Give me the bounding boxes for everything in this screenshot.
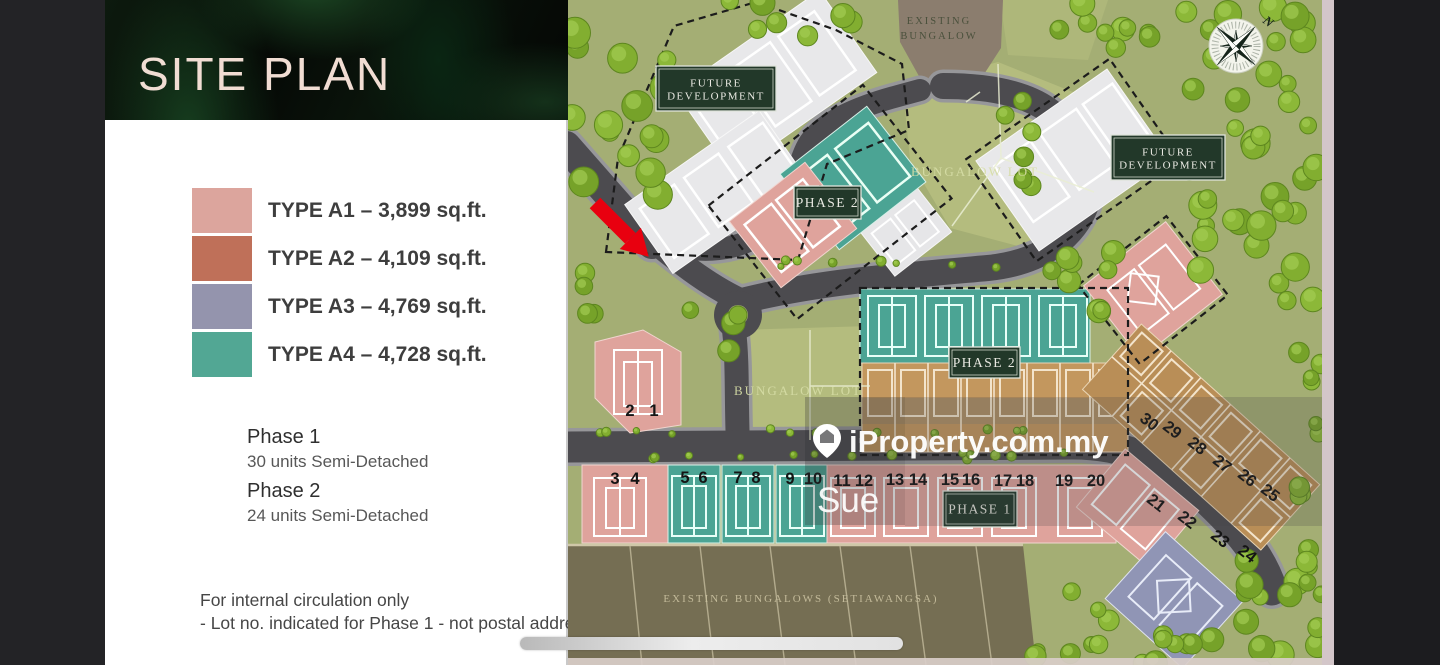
phase-block: Phase 130 units Semi-Detached [247,426,547,472]
plan-sign: FUTUREDEVELOPMENT [656,66,776,111]
page-title: SITE PLAN [138,47,391,101]
leaf-header-image: SITE PLAN [105,0,568,120]
lot-number: 1 [649,402,658,420]
svg-text:DEVELOPMENT: DEVELOPMENT [667,91,765,103]
svg-text:PHASE 2: PHASE 2 [796,195,859,210]
horizontal-scrollbar-thumb[interactable] [520,637,903,650]
watermark: iProperty.com.mySue [805,397,1322,526]
phase-name: Phase 1 [247,426,547,449]
phase-name: Phase 2 [247,480,547,503]
legend-label: TYPE A4 – 4,728 sq.ft. [268,343,487,367]
area-label: EXISTING BUNGALOWS (SETIAWANGSA) [663,593,938,605]
phase-detail: 24 units Semi-Detached [247,506,547,526]
image-edge [1322,0,1334,665]
area-label: BUNGALOW LOT [734,383,862,398]
legend-swatch [192,188,252,233]
lot-number: 6 [698,469,707,487]
site-plan-drawing: FUTUREDEVELOPMENTFUTUREDEVELOPMENTPHASE … [568,0,1322,665]
phase-detail: 30 units Semi-Detached [247,452,547,472]
viewer-background-left [0,0,105,665]
legend-row: TYPE A2 – 4,109 sq.ft. [192,236,487,281]
legend-row: TYPE A4 – 4,728 sq.ft. [192,332,487,377]
unit-type-legend: TYPE A1 – 3,899 sq.ft.TYPE A2 – 4,109 sq… [192,188,487,380]
agent-watermark: Sue [817,481,879,520]
svg-text:FUTURE: FUTURE [1142,147,1194,159]
footnote-line: For internal circulation only [200,589,592,612]
lot-number: 7 [733,469,742,487]
lot-number: 3 [610,470,619,488]
legend-row: TYPE A1 – 3,899 sq.ft. [192,188,487,233]
lot-number: 4 [630,470,640,488]
info-panel: SITE PLAN TYPE A1 – 3,899 sq.ft.TYPE A2 … [105,0,568,665]
legend-swatch [192,284,252,329]
lot-number: 2 [625,402,634,420]
plan-sign: PHASE 2 [949,347,1020,378]
legend-label: TYPE A2 – 4,109 sq.ft. [268,247,487,271]
phase-block: Phase 224 units Semi-Detached [247,480,547,526]
legend-swatch [192,332,252,377]
svg-text:PHASE 2: PHASE 2 [953,355,1016,370]
lot-number: 8 [751,469,760,487]
plan-sign: PHASE 2 [794,186,861,219]
plan-sign: FUTUREDEVELOPMENT [1111,135,1225,180]
legend-row: TYPE A3 – 4,769 sq.ft. [192,284,487,329]
lot-number: 9 [785,470,794,488]
legend-label: TYPE A3 – 4,769 sq.ft. [268,295,487,319]
gallery-image[interactable]: SITE PLAN TYPE A1 – 3,899 sq.ft.TYPE A2 … [0,0,1440,665]
svg-text:FUTURE: FUTURE [690,78,742,90]
iproperty-watermark: iProperty.com.my [849,424,1109,459]
lot-number: 5 [680,469,689,487]
site-plan-image[interactable]: FUTUREDEVELOPMENTFUTUREDEVELOPMENTPHASE … [568,0,1322,665]
viewer-background-right [1334,0,1440,665]
svg-text:DEVELOPMENT: DEVELOPMENT [1119,160,1217,172]
legend-label: TYPE A1 – 3,899 sq.ft. [268,199,487,223]
area-label: BUNGALOW LOT [911,164,1039,179]
area-label: EXISTING [907,16,971,27]
footnote-line: - Lot no. indicated for Phase 1 - not po… [200,612,592,635]
footnotes: For internal circulation only- Lot no. i… [200,589,592,635]
legend-swatch [192,236,252,281]
area-label: BUNGALOW [900,31,977,42]
